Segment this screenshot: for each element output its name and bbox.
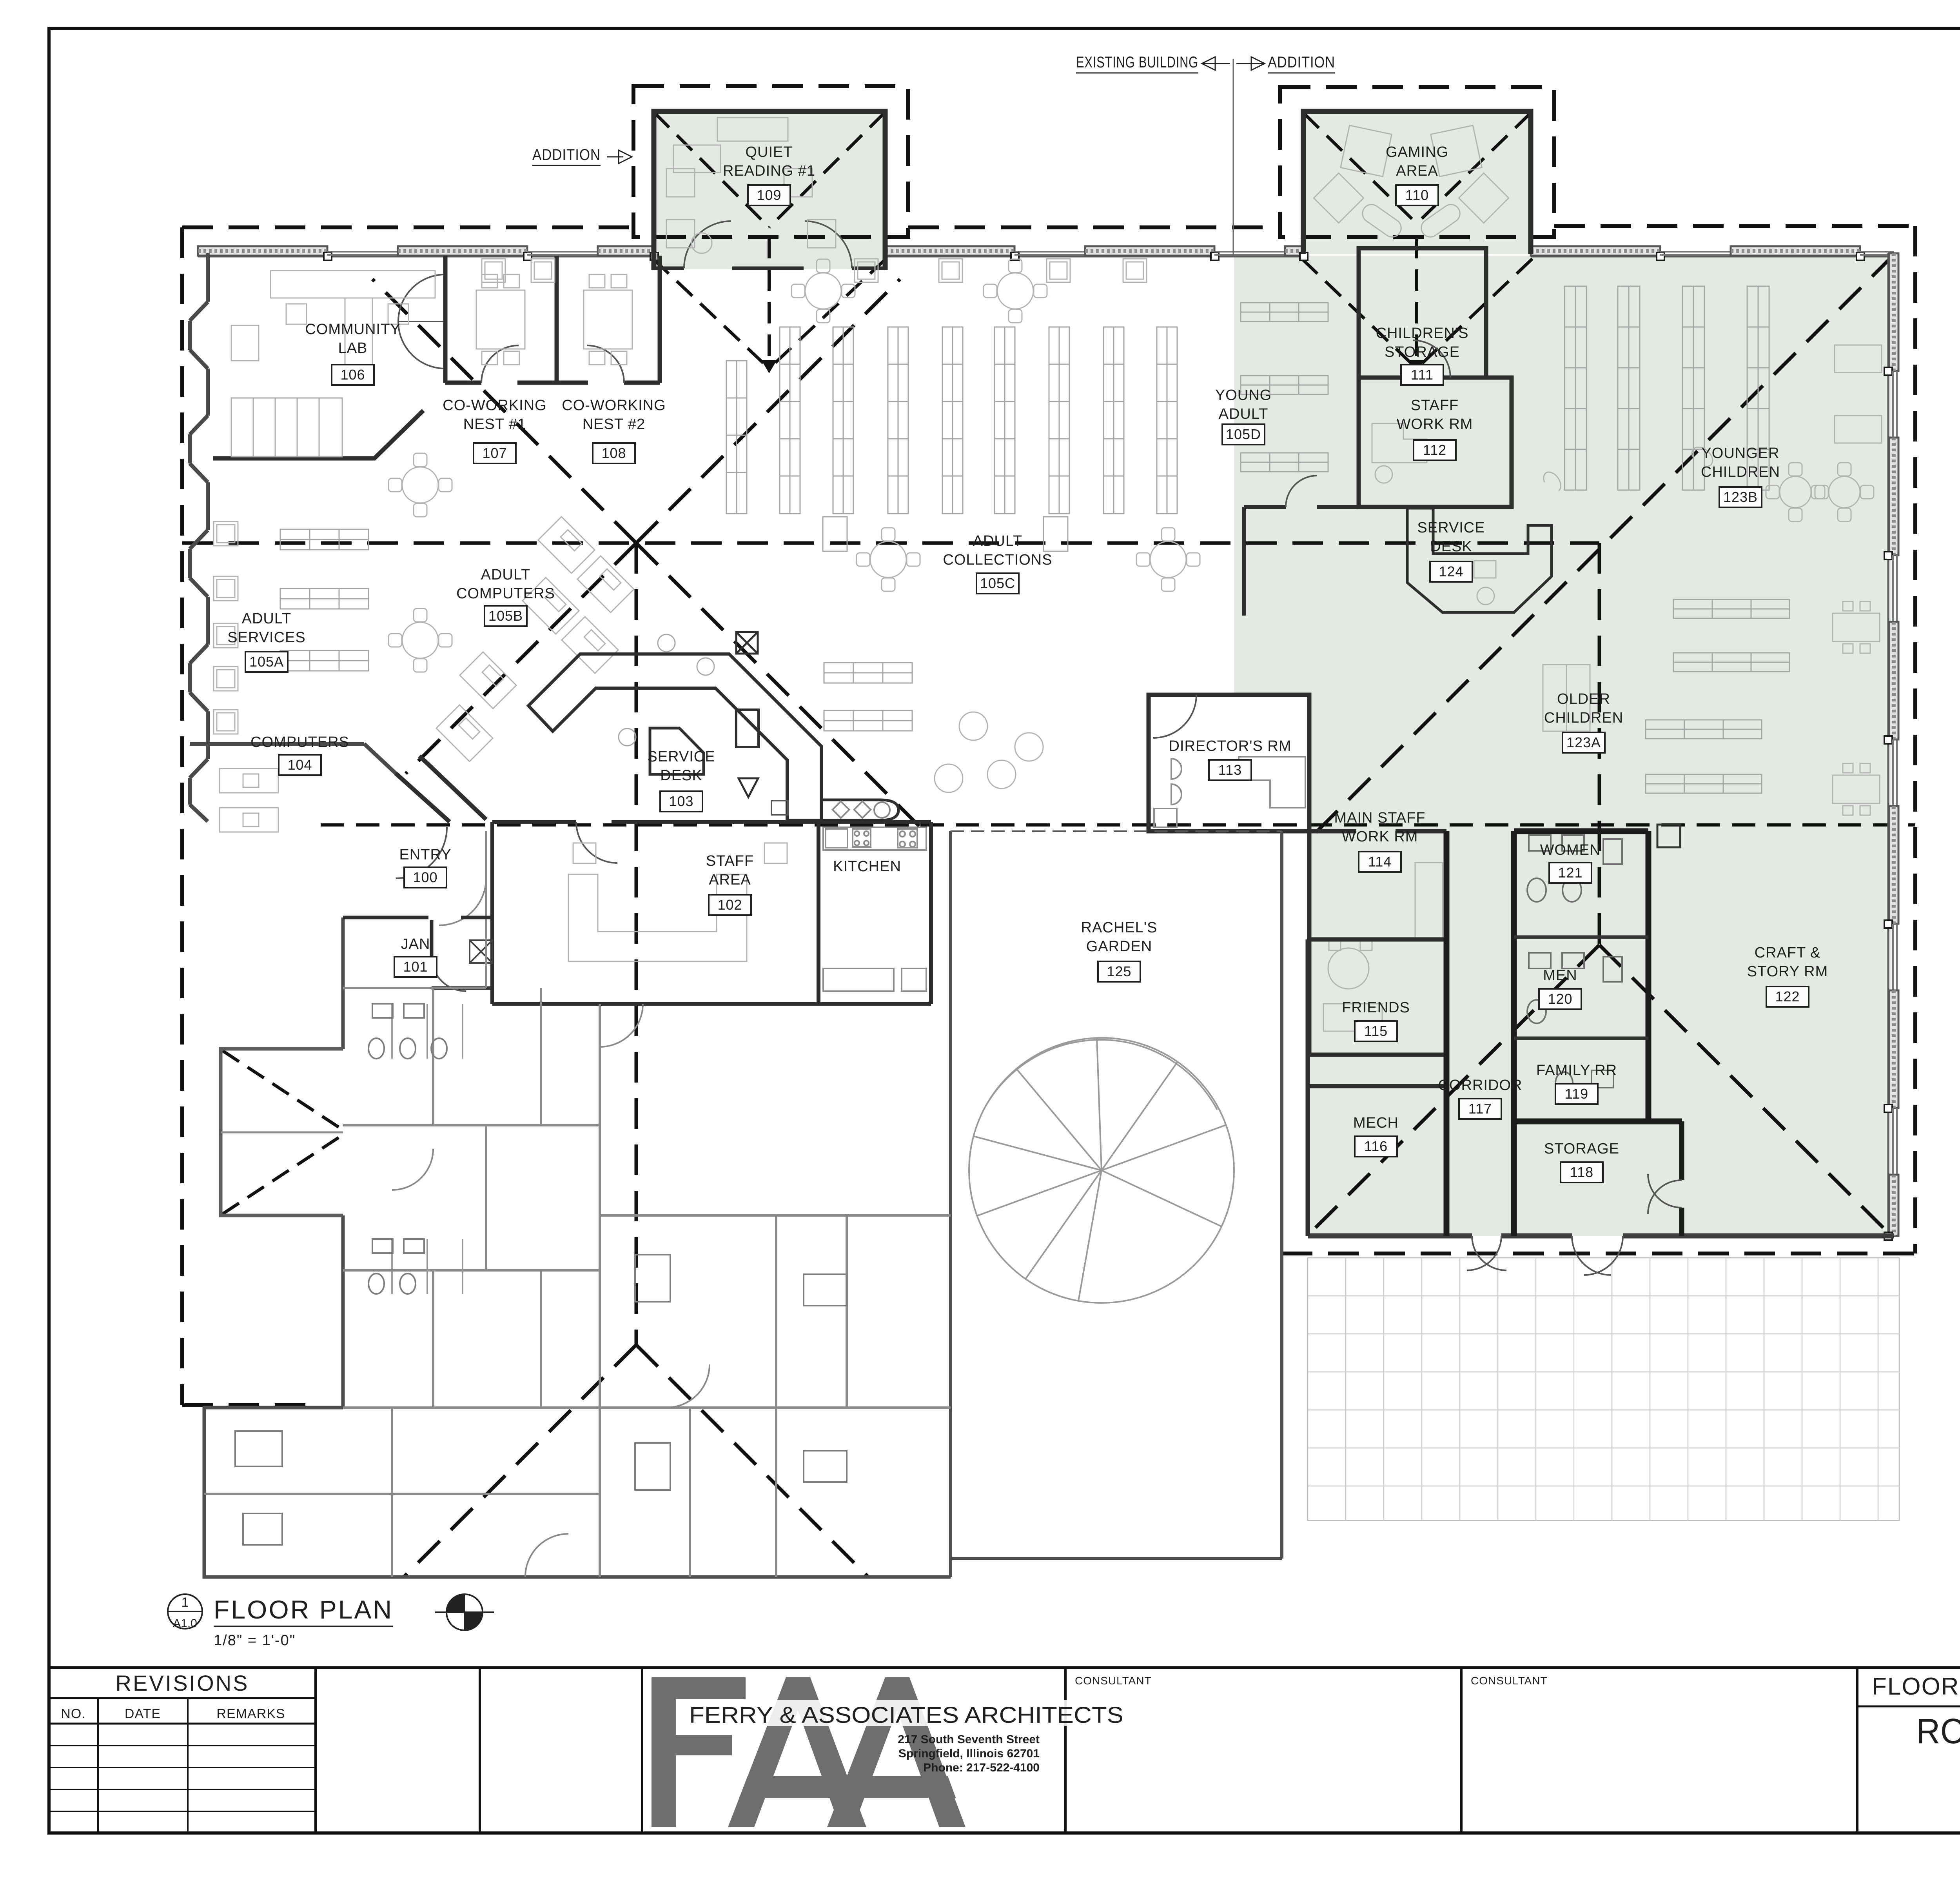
svg-text:ADDITION: ADDITION [1268, 54, 1335, 71]
svg-text:REMARKS: REMARKS [216, 1706, 285, 1721]
svg-text:DESK: DESK [660, 767, 702, 784]
svg-text:NO.: NO. [61, 1706, 85, 1721]
svg-text:FAMILY RR: FAMILY RR [1536, 1062, 1617, 1079]
svg-text:111: 111 [1411, 367, 1434, 383]
svg-text:QUIET: QUIET [745, 144, 793, 160]
svg-text:Springfield, Illinois: Springfield, Illinois 62701 [898, 1747, 1040, 1760]
svg-text:SERVICE: SERVICE [647, 748, 715, 765]
svg-text:AREA: AREA [709, 872, 751, 888]
svg-text:CORRIDOR: CORRIDOR [1438, 1077, 1523, 1094]
svg-text:ADULT: ADULT [973, 533, 1023, 549]
svg-text:STORY RM: STORY RM [1747, 963, 1828, 980]
svg-text:105A: 105A [249, 654, 284, 670]
svg-text:DATE: DATE [125, 1706, 161, 1721]
svg-text:ADULT: ADULT [481, 567, 531, 583]
svg-text:FERRY & ASSOCIATES ARCHITECTS: FERRY & ASSOCIATES ARCHITECTS [689, 1702, 1123, 1728]
svg-text:102: 102 [717, 897, 742, 913]
svg-text:YOUNG: YOUNG [1215, 387, 1272, 403]
svg-text:217 South Seventh Street: 217 South Seventh Street [898, 1733, 1040, 1746]
svg-text:CHILDREN'S: CHILDREN'S [1376, 325, 1469, 342]
svg-text:WORK RM: WORK RM [1342, 828, 1418, 845]
svg-text:RACHEL'S: RACHEL'S [1081, 919, 1158, 936]
svg-text:WOMEN: WOMEN [1540, 842, 1601, 858]
svg-text:118: 118 [1570, 1164, 1593, 1180]
svg-text:122: 122 [1775, 988, 1800, 1005]
svg-text:MAIN STAFF: MAIN STAFF [1334, 810, 1425, 826]
svg-text:ADDITION: ADDITION [532, 146, 601, 163]
svg-text:OLDER: OLDER [1557, 691, 1610, 707]
svg-text:STAFF: STAFF [1411, 397, 1459, 414]
svg-text:123B: 123B [1723, 489, 1758, 505]
svg-text:CO-WORKING: CO-WORKING [443, 397, 546, 414]
svg-text:1/8" = 1'-0": 1/8" = 1'-0" [214, 1632, 296, 1649]
svg-text:100: 100 [413, 869, 437, 885]
svg-text:FRIENDS: FRIENDS [1342, 999, 1410, 1016]
svg-text:110: 110 [1405, 187, 1429, 203]
svg-text:CHILDREN: CHILDREN [1544, 710, 1623, 726]
svg-text:GAMING: GAMING [1386, 144, 1448, 160]
svg-text:MECH: MECH [1353, 1115, 1399, 1131]
svg-text:CRAFT &: CRAFT & [1755, 945, 1821, 961]
svg-text:109: 109 [757, 187, 781, 203]
svg-text:CONSULTANT: CONSULTANT [1075, 1675, 1152, 1687]
svg-text:CHILDREN: CHILDREN [1701, 464, 1780, 480]
svg-text:KITCHEN: KITCHEN [833, 858, 901, 875]
svg-text:ADULT: ADULT [1219, 406, 1269, 422]
svg-text:LAB: LAB [338, 340, 368, 356]
svg-text:CONSULTANT: CONSULTANT [1471, 1675, 1548, 1687]
svg-text:GARDEN: GARDEN [1086, 938, 1152, 955]
svg-text:WORK RM: WORK RM [1397, 416, 1473, 432]
svg-text:NEST #1: NEST #1 [463, 416, 526, 432]
svg-text:STORAGE: STORAGE [1385, 344, 1460, 360]
svg-text:112: 112 [1423, 442, 1446, 458]
svg-text:SERVICE: SERVICE [1417, 520, 1485, 536]
svg-text:ROCHESTER PUBLIC LIBRARY DISTR: ROCHESTER PUBLIC LIBRARY DISTRICT [1916, 1712, 1960, 1751]
svg-text:105D: 105D [1226, 426, 1261, 442]
svg-text:STAFF: STAFF [706, 853, 754, 869]
svg-text:COMPUTERS: COMPUTERS [250, 734, 349, 750]
svg-text:113: 113 [1218, 762, 1242, 778]
svg-text:101: 101 [403, 959, 428, 975]
svg-text:ENTRY: ENTRY [399, 847, 451, 863]
svg-text:116: 116 [1364, 1138, 1388, 1154]
svg-text:105C: 105C [980, 575, 1015, 591]
svg-text:ADULT: ADULT [242, 610, 292, 627]
svg-text:EXISTING BUILDING: EXISTING BUILDING [1076, 54, 1198, 71]
svg-text:SERVICES: SERVICES [227, 629, 305, 646]
svg-text:A1.0: A1.0 [173, 1617, 197, 1630]
svg-text:FLOOR PLAN: FLOOR PLAN [214, 1595, 393, 1624]
svg-text:COMMUNITY: COMMUNITY [305, 321, 400, 338]
svg-text:DIRECTOR'S RM: DIRECTOR'S RM [1169, 738, 1291, 754]
svg-text:123A: 123A [1566, 734, 1601, 750]
svg-text:AREA: AREA [1396, 163, 1438, 179]
svg-text:STORAGE: STORAGE [1544, 1141, 1619, 1157]
svg-text:120: 120 [1548, 991, 1572, 1007]
svg-text:119: 119 [1565, 1086, 1588, 1102]
svg-text:114: 114 [1368, 854, 1392, 870]
svg-text:YOUNGER: YOUNGER [1701, 445, 1779, 461]
svg-text:Phone: 217-522: Phone: 217-522-4100 [923, 1761, 1040, 1774]
svg-text:125: 125 [1107, 963, 1131, 979]
svg-text:READING #1: READING #1 [723, 163, 815, 179]
svg-text:106: 106 [340, 367, 365, 383]
svg-text:REVISIONS: REVISIONS [116, 1671, 249, 1695]
svg-text:121: 121 [1558, 865, 1583, 881]
svg-text:FLOOR PLAN: FLOOR PLAN [1872, 1673, 1960, 1700]
svg-text:CO-WORKING: CO-WORKING [562, 397, 666, 414]
svg-text:1: 1 [181, 1595, 189, 1610]
svg-text:103: 103 [669, 793, 693, 809]
svg-text:COMPUTERS: COMPUTERS [456, 585, 555, 602]
svg-text:115: 115 [1364, 1023, 1388, 1039]
svg-text:DESK: DESK [1430, 538, 1472, 555]
svg-text:104: 104 [287, 757, 312, 773]
svg-text:NEST #2: NEST #2 [583, 416, 645, 432]
svg-text:COLLECTIONS: COLLECTIONS [943, 552, 1052, 568]
svg-text:JAN: JAN [401, 936, 430, 952]
svg-text:117: 117 [1468, 1101, 1492, 1117]
svg-text:MEN: MEN [1543, 967, 1577, 984]
svg-text:108: 108 [601, 445, 626, 461]
svg-text:107: 107 [482, 445, 507, 461]
svg-text:105B: 105B [488, 608, 523, 624]
svg-text:124: 124 [1439, 563, 1463, 579]
